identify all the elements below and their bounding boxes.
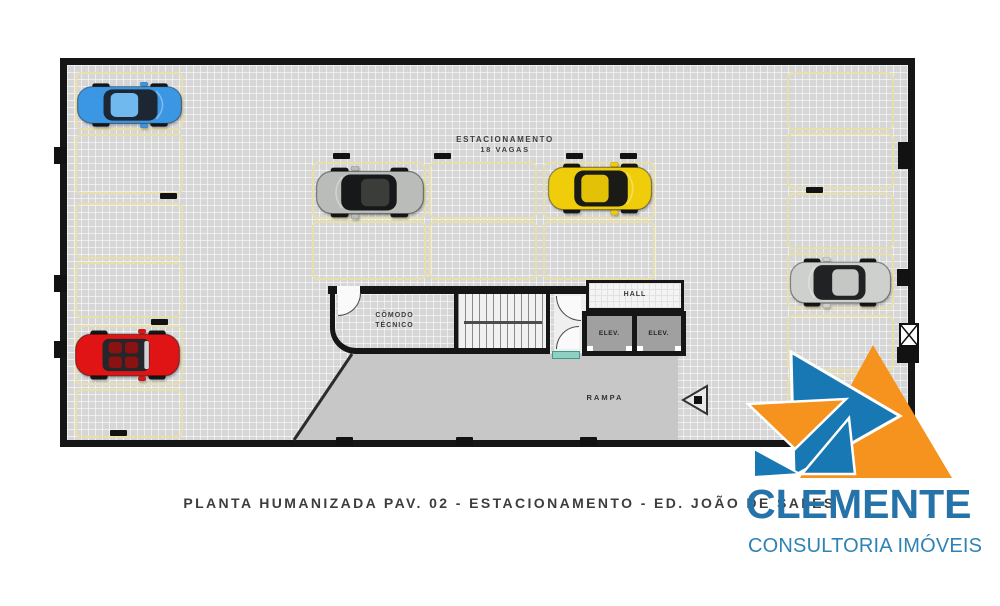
parking-spot: [429, 162, 537, 219]
parking-spot: [787, 133, 894, 189]
pillar-marker: [806, 187, 823, 193]
red-car-top-view: [74, 329, 181, 381]
elevator-left-label: ELEV.: [599, 330, 620, 337]
clemente-logo-icon: [735, 336, 997, 488]
area-label-line2: 18 VAGAS: [415, 145, 595, 154]
elevator-right-label: ELEV.: [648, 330, 669, 337]
logo-company-name: CLEMENTE: [746, 484, 972, 525]
pillar-marker: [456, 437, 473, 446]
elevator-bank: ELEV. ELEV.: [582, 311, 686, 356]
core-top-wall: [328, 286, 586, 294]
hall-room: HALL: [586, 280, 684, 311]
ramp-label: RAMPA: [560, 393, 650, 402]
parking-spot: [75, 203, 183, 259]
stair-landing-line: [464, 321, 542, 324]
area-label-line1: ESTACIONAMENTO: [415, 135, 595, 144]
pillar-marker: [160, 193, 177, 199]
pillar-marker: [580, 437, 597, 446]
parking-spot: [787, 72, 894, 130]
parking-spot: [312, 221, 426, 280]
elevator-left: ELEV.: [587, 316, 632, 351]
technical-room-label-line1: CÔMODO: [375, 311, 413, 322]
wall-stub: [898, 142, 913, 169]
parking-spot: [543, 221, 655, 280]
parking-spot: [75, 134, 183, 194]
pillar-marker: [333, 153, 350, 159]
pillar-marker: [336, 437, 353, 446]
parking-spot: [75, 389, 183, 438]
parking-spot: [75, 262, 183, 318]
floor-plan-page: CÔMODO TÉCNICO HALL ELEV. ELEV. ESTACION…: [0, 0, 1000, 606]
pillar-marker: [110, 430, 127, 436]
elevator-right: ELEV.: [637, 316, 682, 351]
pillar-marker: [151, 319, 168, 325]
technical-room-label-line2: TÉCNICO: [375, 321, 414, 332]
parking-spot: [787, 193, 894, 249]
wall-stub: [54, 147, 67, 164]
area-label: ESTACIONAMENTO 18 VAGAS: [415, 135, 595, 154]
wall-stub: [897, 269, 910, 286]
silver-car-top-view: [789, 257, 892, 308]
gray-car-top-view: [315, 166, 425, 219]
parking-spot: [429, 221, 537, 280]
blue-car-top-view: [76, 82, 183, 128]
hall-label: HALL: [624, 290, 647, 301]
wall-stub: [54, 275, 67, 292]
yellow-car-top-view: [547, 162, 653, 215]
pillar-marker: [620, 153, 637, 159]
entry-mat: [552, 351, 580, 359]
logo-tagline: CONSULTORIA IMÓVEIS: [748, 534, 982, 558]
wall-stub: [54, 341, 67, 358]
staircase: [458, 294, 550, 354]
